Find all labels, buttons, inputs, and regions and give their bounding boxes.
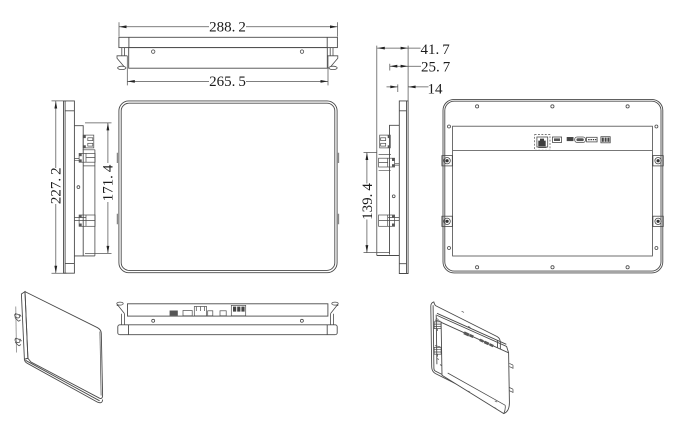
- svg-text:227. 2: 227. 2: [48, 167, 64, 204]
- svg-text:265. 5: 265. 5: [209, 74, 246, 90]
- svg-text:139. 4: 139. 4: [360, 183, 376, 220]
- svg-text:14: 14: [428, 82, 444, 98]
- svg-text:288. 2: 288. 2: [209, 20, 246, 36]
- svg-text:171. 4: 171. 4: [100, 164, 116, 201]
- svg-text:25. 7: 25. 7: [421, 60, 451, 76]
- svg-text:41. 7: 41. 7: [421, 42, 451, 58]
